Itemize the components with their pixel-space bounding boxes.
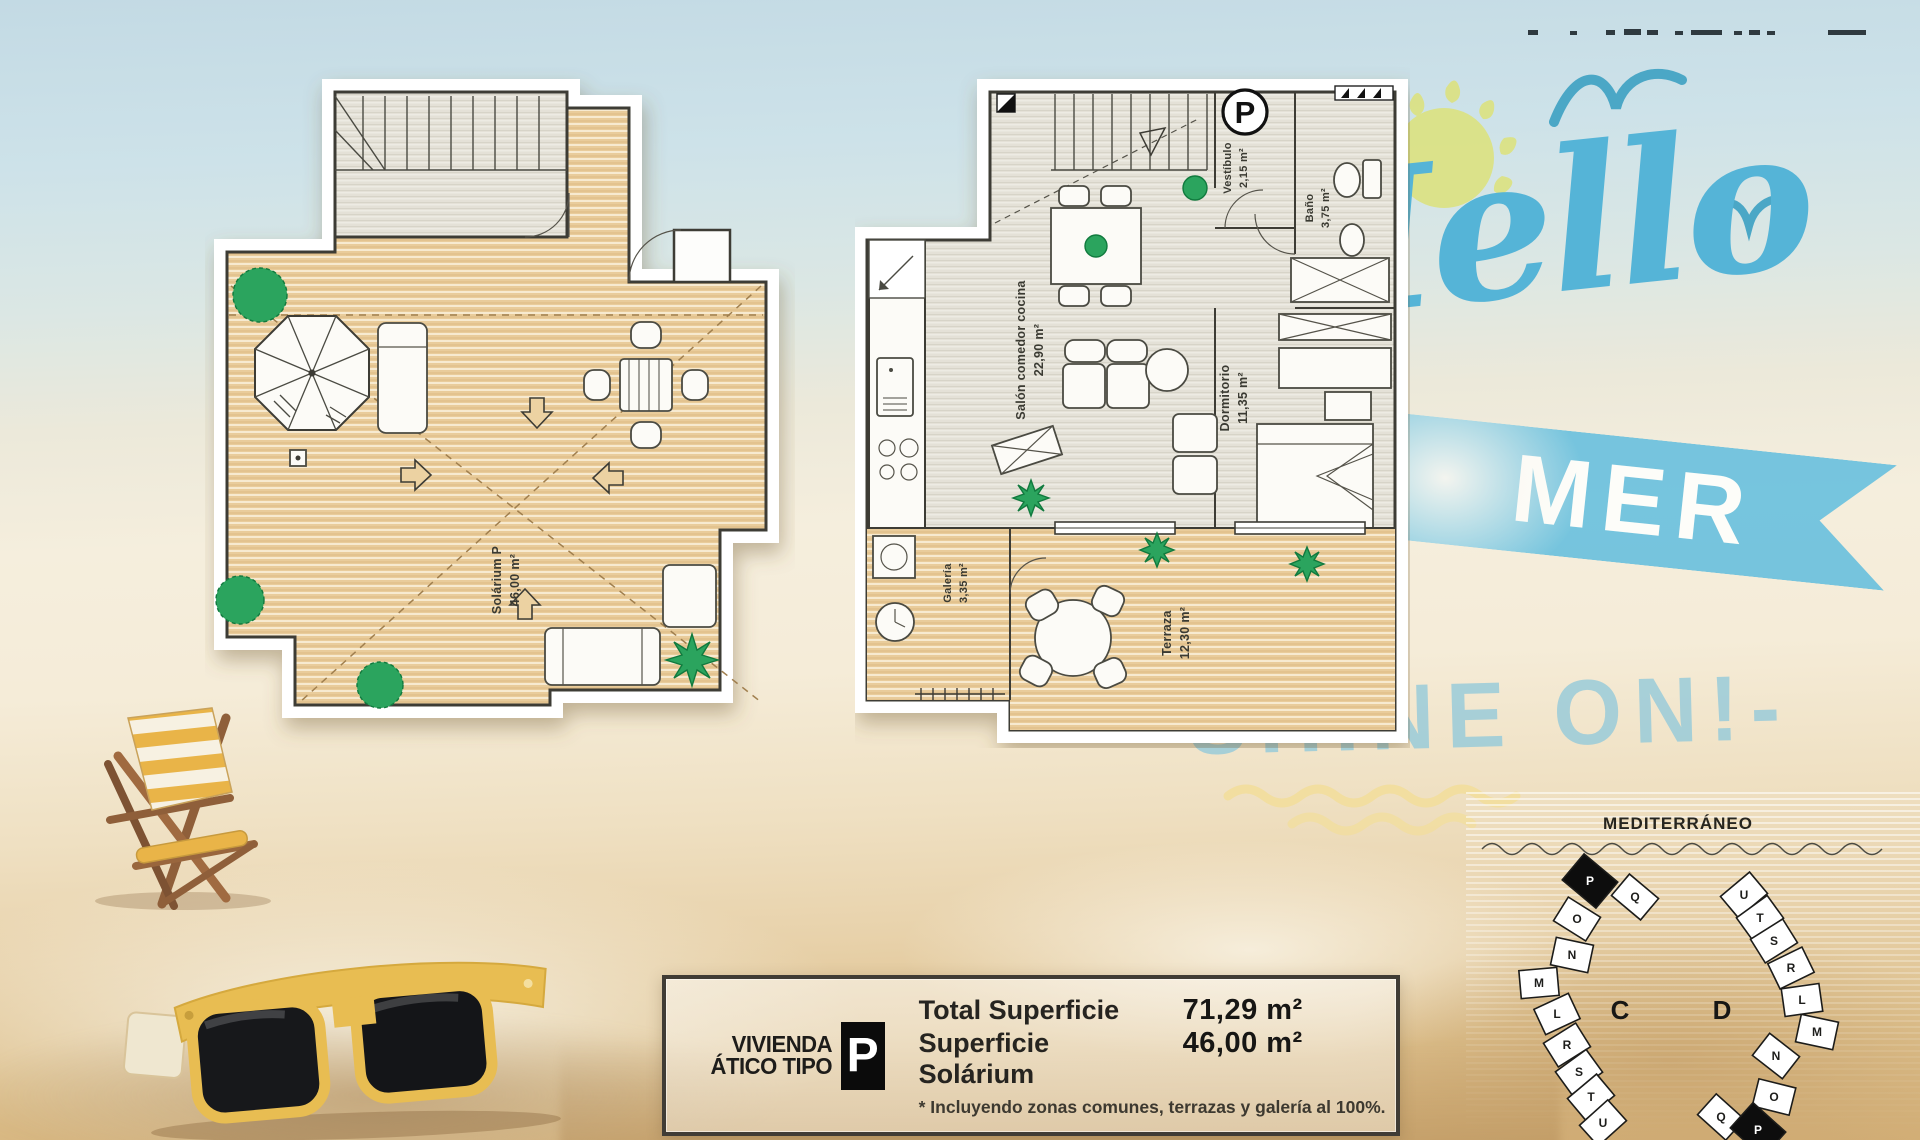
north-marker-icon bbox=[997, 94, 1015, 112]
site-map: MEDITERRÁNEO P Q O N M L R S T U C U T S… bbox=[1468, 793, 1920, 1140]
poster: Hello MER SHINE ON!- MEDITERRÁNEO P Q O … bbox=[0, 0, 1920, 1140]
unit-label: P bbox=[1586, 874, 1594, 888]
unit-label: N bbox=[1568, 948, 1577, 962]
unit-label: U bbox=[1740, 888, 1749, 902]
parasol bbox=[255, 316, 369, 430]
bench bbox=[545, 628, 660, 685]
apartment-floor-plan: P bbox=[855, 58, 1410, 748]
cluster-c-label: C bbox=[1611, 995, 1630, 1025]
unit-label: P bbox=[1754, 1123, 1762, 1137]
unit-label: U bbox=[1599, 1116, 1608, 1130]
unit-label: S bbox=[1770, 934, 1778, 948]
unit-label: N bbox=[1772, 1049, 1781, 1063]
total-surface-value: 71,29 m² bbox=[1183, 994, 1303, 1027]
solarium-surface-label: Superficie Solárium bbox=[919, 1028, 1171, 1090]
room-label-bano: Baño bbox=[1304, 194, 1316, 223]
room-label-terraza: Terraza bbox=[1160, 609, 1174, 655]
unit-label: R bbox=[1563, 1038, 1572, 1052]
plan-sticker bbox=[867, 92, 1395, 730]
unit-label: Q bbox=[1716, 1110, 1725, 1124]
roof-vent bbox=[290, 450, 306, 466]
room-area-salon: 22,90 m² bbox=[1032, 324, 1046, 376]
sea-label: MEDITERRÁNEO bbox=[1603, 814, 1753, 833]
room-label-galeria: Galería bbox=[942, 563, 954, 603]
unit-label: Q bbox=[1630, 890, 1639, 904]
bush bbox=[357, 662, 403, 708]
summer-ribbon: MER bbox=[1339, 408, 1897, 591]
surface-summary: Total Superficie 71,29 m² Superficie Sol… bbox=[919, 994, 1386, 1118]
wall-block bbox=[674, 230, 730, 282]
kitchen bbox=[869, 240, 925, 528]
unit-label: R bbox=[1787, 961, 1796, 975]
unit-label: L bbox=[1798, 993, 1805, 1007]
unit-label: M bbox=[1534, 976, 1544, 990]
solarium-surface-value: 46,00 m² bbox=[1183, 1027, 1303, 1060]
footnote: * Incluyendo zonas comunes, terrazas y g… bbox=[919, 1097, 1386, 1118]
room-label-vestibulo: Vestíbulo bbox=[1222, 142, 1234, 194]
unit-label: L bbox=[1553, 1007, 1560, 1021]
svg-text:P: P bbox=[1235, 95, 1256, 130]
unit-label: O bbox=[1572, 912, 1581, 926]
building-cluster-d: U T S R L M N O Q P D bbox=[1698, 872, 1839, 1140]
total-surface-label: Total Superficie bbox=[919, 995, 1171, 1026]
cluster-d-label: D bbox=[1713, 995, 1732, 1025]
shoreline-wave bbox=[1482, 844, 1882, 855]
room-area-terraza: 12,30 m² bbox=[1178, 607, 1192, 659]
stairwell bbox=[335, 92, 569, 237]
unit-label: O bbox=[1769, 1090, 1778, 1104]
room-label-solarium: Solárium P bbox=[490, 546, 504, 614]
room-label-salon: Salón comedor cocina bbox=[1014, 280, 1028, 420]
room-label-dormitorio: Dormitorio bbox=[1218, 364, 1232, 431]
unit-label: T bbox=[1756, 911, 1764, 925]
building-cluster-c: P Q O N M L R S T U C bbox=[1519, 854, 1659, 1140]
bush bbox=[216, 576, 264, 624]
room-area-solarium: 46,00 m² bbox=[508, 554, 522, 606]
room-area-bano: 3,75 m² bbox=[1320, 188, 1332, 228]
bathroom-vent-window bbox=[1335, 86, 1393, 100]
solarium-floor-plan: Solárium P 46,00 m² bbox=[205, 60, 795, 760]
dwelling-title: VIVIENDA ÁTICO TIPO bbox=[711, 1034, 833, 1078]
dwelling-line2: ÁTICO TIPO bbox=[711, 1056, 833, 1078]
room-area-galeria: 3,35 m² bbox=[958, 563, 970, 603]
unit-label: T bbox=[1587, 1090, 1595, 1104]
bush bbox=[233, 268, 287, 322]
info-box: VIVIENDA ÁTICO TIPO P Total Superficie 7… bbox=[662, 975, 1400, 1136]
armchair bbox=[663, 565, 716, 627]
plan-type-badge: P bbox=[1223, 90, 1267, 134]
room-area-vestibulo: 2,15 m² bbox=[1238, 148, 1250, 188]
type-badge: P bbox=[841, 1022, 885, 1090]
sun-lounger bbox=[378, 323, 427, 433]
room-area-dormitorio: 11,35 m² bbox=[1236, 372, 1250, 424]
cropped-text-fragments bbox=[1528, 22, 1918, 40]
unit-label: M bbox=[1812, 1025, 1822, 1039]
deck-chair-photo bbox=[78, 698, 283, 913]
unit-label: S bbox=[1575, 1065, 1583, 1079]
sunglasses-photo bbox=[115, 930, 572, 1140]
